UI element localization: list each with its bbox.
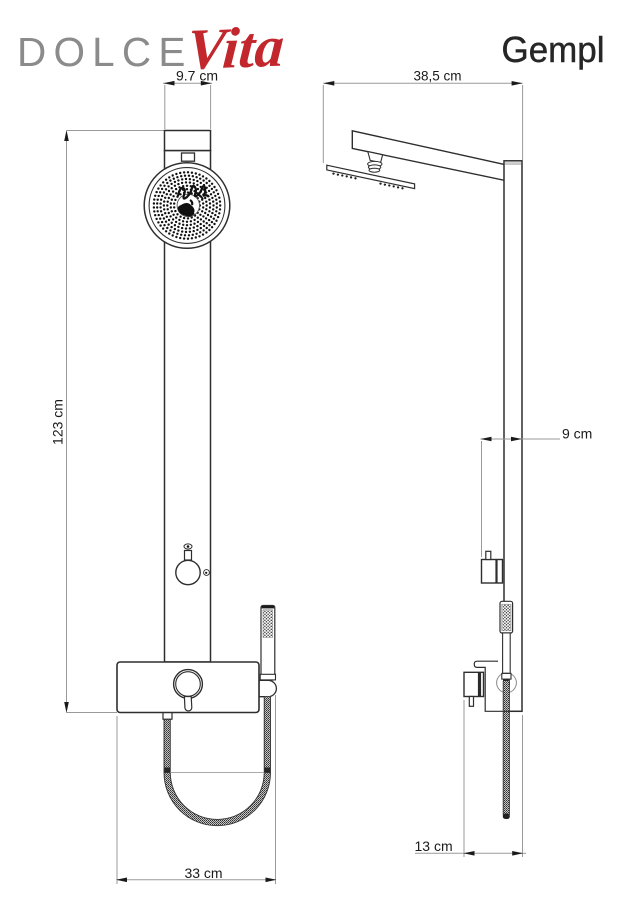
svg-text:9.7 cm: 9.7 cm <box>176 68 218 84</box>
svg-text:38,5 cm: 38,5 cm <box>413 69 461 84</box>
svg-text:123 cm: 123 cm <box>50 399 66 445</box>
svg-text:Gempl: Gempl <box>502 29 605 70</box>
svg-text:13 cm: 13 cm <box>415 838 453 854</box>
svg-text:9 cm: 9 cm <box>562 426 592 442</box>
svg-text:33 cm: 33 cm <box>184 865 222 881</box>
svg-text:DOLCE: DOLCE <box>17 29 193 75</box>
